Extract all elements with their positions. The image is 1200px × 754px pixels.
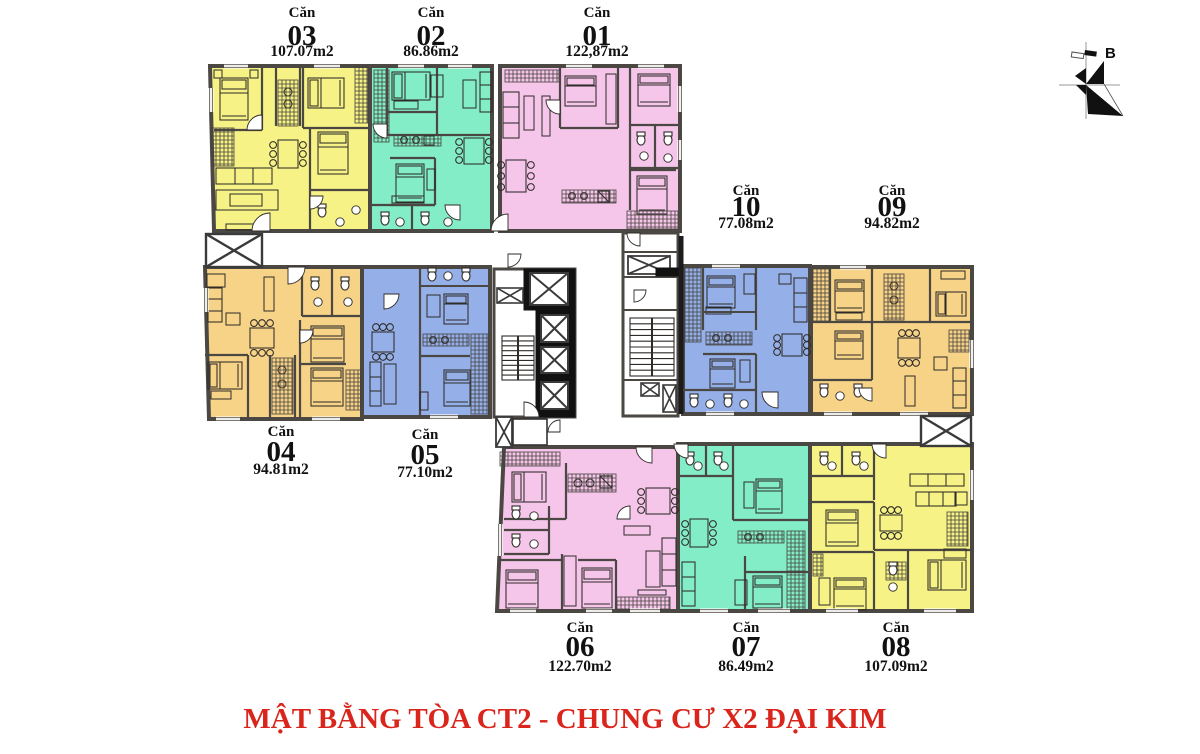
svg-text:107.09m2: 107.09m2 [864, 658, 928, 675]
svg-text:122.70m2: 122.70m2 [548, 658, 612, 675]
svg-text:B: B [1105, 45, 1116, 62]
svg-text:77.08m2: 77.08m2 [718, 215, 774, 232]
svg-text:86.49m2: 86.49m2 [718, 658, 774, 675]
svg-text:Căn: Căn [418, 5, 445, 21]
svg-text:MẬT BẰNG TÒA CT2 - CHUNG CƯ X2: MẬT BẰNG TÒA CT2 - CHUNG CƯ X2 ĐẠI KIM [243, 701, 886, 735]
svg-text:107.07m2: 107.07m2 [270, 43, 334, 60]
svg-text:77.10m2: 77.10m2 [397, 464, 453, 481]
svg-text:122,87m2: 122,87m2 [565, 43, 629, 60]
svg-text:94.82m2: 94.82m2 [864, 215, 920, 232]
svg-text:Căn: Căn [584, 5, 611, 21]
svg-text:Căn: Căn [289, 5, 316, 21]
svg-text:94.81m2: 94.81m2 [253, 461, 309, 478]
svg-text:86.86m2: 86.86m2 [403, 43, 459, 60]
